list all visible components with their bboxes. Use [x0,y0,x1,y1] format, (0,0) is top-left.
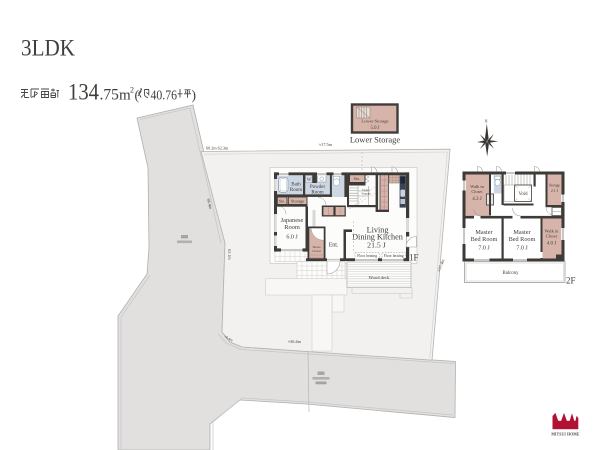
svg-text:60.2m 62.3m: 60.2m 62.3m [206,145,229,150]
svg-text:Void: Void [519,192,529,197]
svg-text:): ) [192,88,197,103]
svg-text:Closet: Closet [546,234,558,239]
svg-text:N: N [485,119,488,124]
svg-text:Closet: Closet [471,189,483,194]
svg-text:4.3 J: 4.3 J [472,197,482,202]
svg-text:3LDK: 3LDK [21,36,75,62]
svg-text:Floor heating: Floor heating [357,254,377,258]
svg-text:63.1m: 63.1m [227,249,232,260]
svg-text:5.0 J: 5.0 J [370,126,379,131]
svg-text:MITSUI HOME: MITSUI HOME [551,432,580,436]
svg-text:Master: Master [513,229,530,236]
svg-text:Wood deck: Wood deck [369,275,390,280]
svg-text:Bath: Bath [291,183,301,188]
svg-text:Bed Room: Bed Room [471,236,498,243]
svg-text:7.0 J: 7.0 J [516,246,528,252]
svg-text:21.5 J: 21.5 J [367,241,386,250]
svg-text:W: W [307,178,312,183]
svg-text:2.1 J: 2.1 J [551,189,559,193]
svg-text:Closet: Closet [312,249,321,253]
svg-text:Master: Master [475,229,492,236]
svg-text:2F: 2F [566,276,576,286]
svg-text:Lower Storage: Lower Storage [361,119,388,124]
svg-text:2: 2 [130,86,134,95]
svg-text:Powder: Powder [310,185,326,190]
svg-text:Sto.: Sto. [279,198,285,203]
svg-text:Japanese: Japanese [281,217,304,224]
svg-text:Bed Room: Bed Room [509,236,536,243]
svg-text:≈36.4m: ≈36.4m [288,339,302,344]
svg-text:7.0 J: 7.0 J [478,246,490,252]
svg-text:Sto.: Sto. [354,176,361,181]
svg-text:Storage: Storage [549,184,560,188]
svg-text:.75: .75 [100,87,120,104]
svg-text:Room: Room [290,188,302,193]
svg-text:4.0 J: 4.0 J [547,242,557,247]
svg-text:Room: Room [284,224,300,231]
svg-text:Storage: Storage [291,198,304,203]
svg-text:40.76: 40.76 [151,88,178,103]
svg-text:6.0 J: 6.0 J [286,235,298,241]
svg-text:Balcony: Balcony [503,271,520,276]
svg-text:≈17.5m: ≈17.5m [319,142,333,147]
svg-text:Lower Storage: Lower Storage [350,135,401,145]
svg-text:134: 134 [68,80,99,105]
svg-text:Storage: Storage [361,192,371,196]
svg-text:Ent.: Ent. [329,242,339,248]
svg-text:Floor heating: Floor heating [384,254,404,258]
svg-text:1F: 1F [409,253,419,263]
